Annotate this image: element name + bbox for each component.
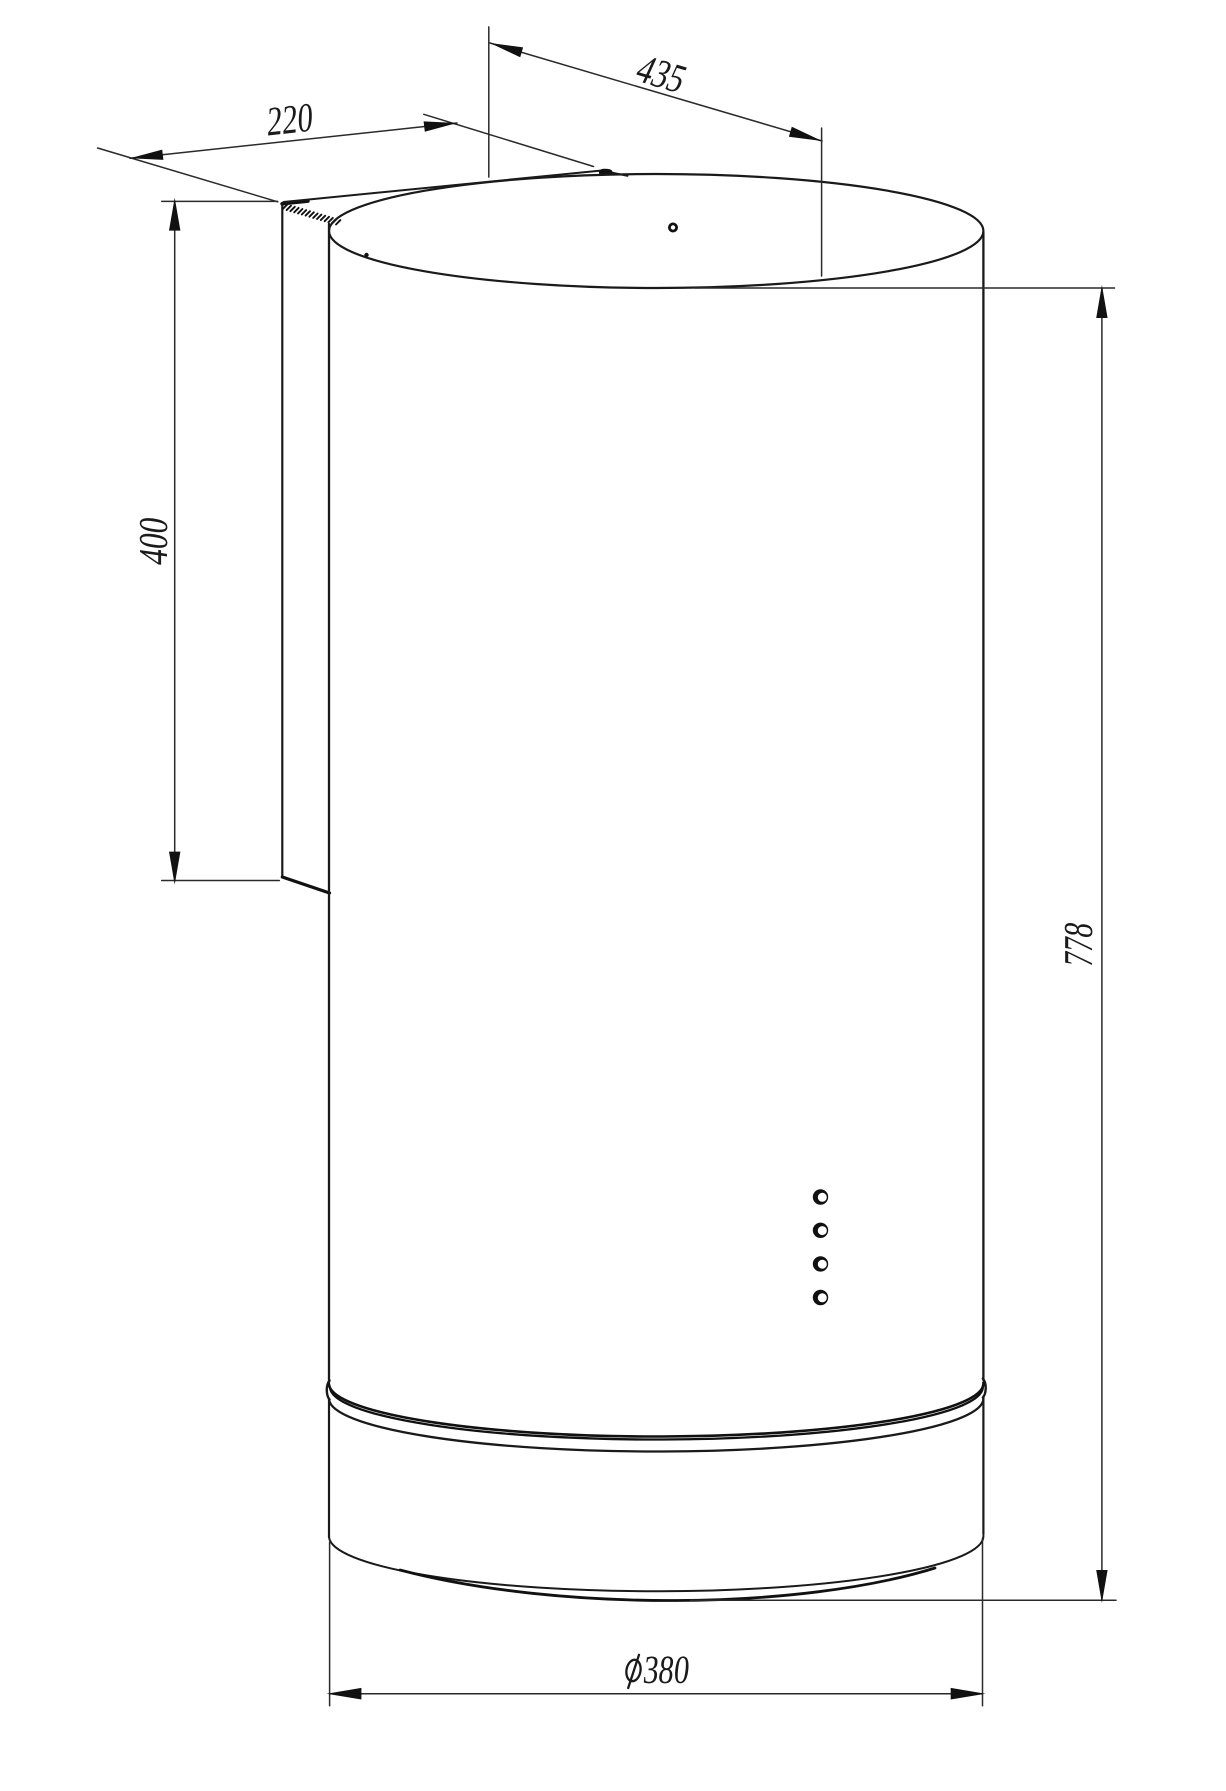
svg-text:380: 380 <box>641 1647 692 1692</box>
svg-text:220: 220 <box>266 93 313 144</box>
svg-text:435: 435 <box>629 46 693 101</box>
svg-text:778: 778 <box>1055 919 1101 969</box>
svg-text:400: 400 <box>130 514 176 567</box>
